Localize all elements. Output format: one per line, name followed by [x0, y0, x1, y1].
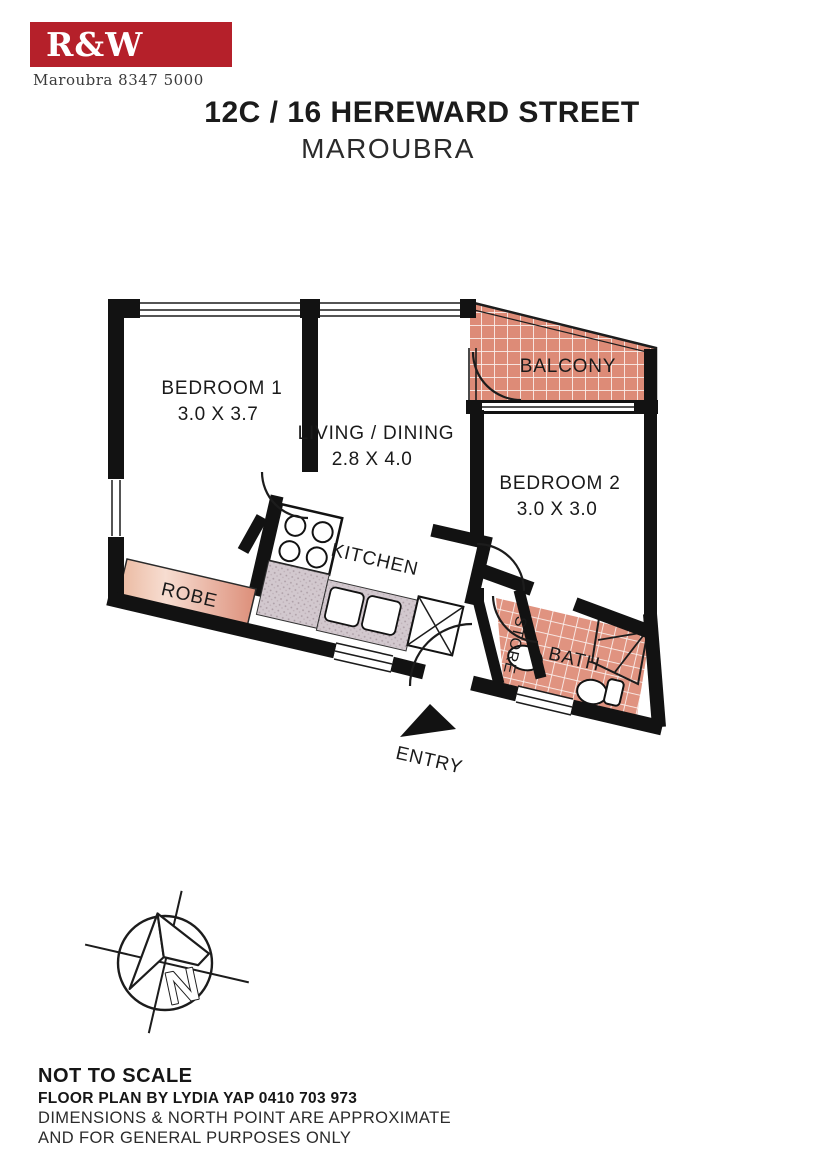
entry-arrow — [400, 704, 456, 737]
room-balcony: BALCONY — [469, 302, 656, 402]
sink-left — [324, 587, 365, 628]
kitchen-label: KITCHEN — [329, 540, 420, 580]
bedroom1-dims: 3.0 X 3.7 — [178, 404, 259, 425]
bedroom1-label: BEDROOM 1 — [161, 378, 282, 399]
floor-plan: BALCONY KITCHEN ROBE — [0, 0, 813, 1150]
page: R&W Maroubra 8347 5000 12C / 16 HEREWARD… — [0, 0, 813, 1150]
entry-marker: ENTRY — [394, 704, 465, 779]
living-label: LIVING / DINING — [298, 423, 455, 444]
disclaimer-approx: DIMENSIONS & NORTH POINT ARE APPROXIMATE — [38, 1109, 451, 1128]
north-arrow: N — [115, 905, 219, 1022]
north-compass: N — [69, 872, 266, 1052]
entry-label: ENTRY — [394, 743, 465, 779]
bedroom2-label: BEDROOM 2 — [499, 473, 620, 494]
bedroom2-dims: 3.0 X 3.0 — [517, 499, 598, 520]
sink-right — [361, 595, 402, 636]
disclaimer-purpose: AND FOR GENERAL PURPOSES ONLY — [38, 1129, 351, 1148]
disclaimer-scale: NOT TO SCALE — [38, 1065, 193, 1088]
balcony-label: BALCONY — [520, 356, 616, 377]
living-dims: 2.8 X 4.0 — [332, 449, 413, 470]
disclaimer-author: FLOOR PLAN BY LYDIA YAP 0410 703 973 — [38, 1090, 357, 1108]
